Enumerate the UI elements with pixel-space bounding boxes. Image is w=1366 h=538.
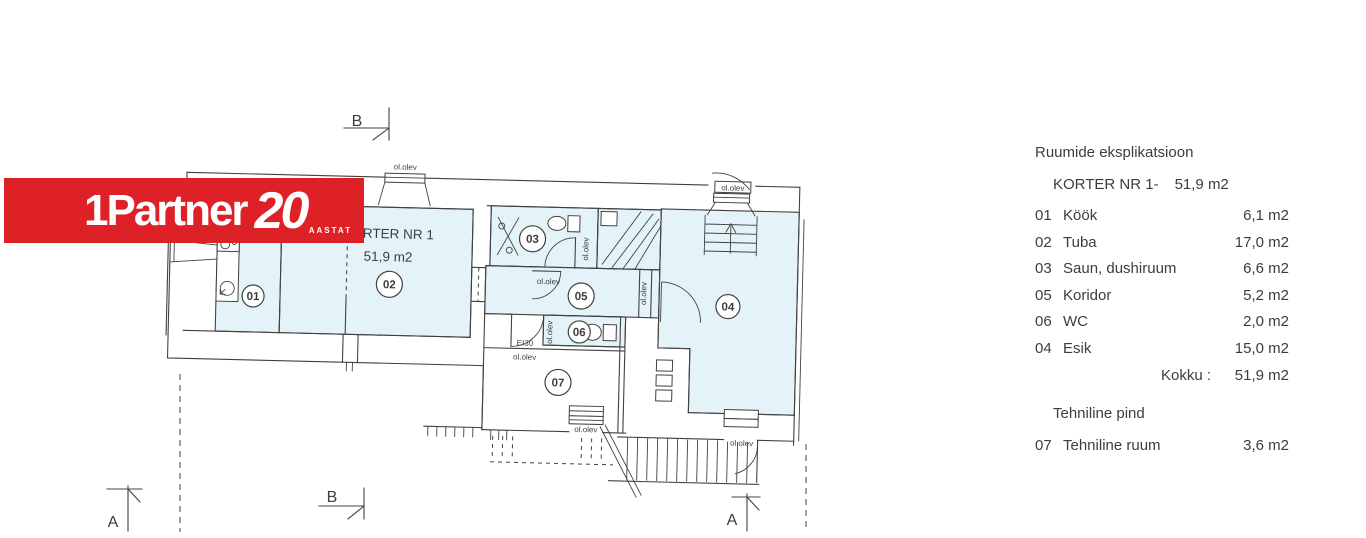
toilet-bowl-icon-03	[548, 216, 566, 230]
wc-existing-label: ol.olev	[545, 321, 555, 344]
north-window-label: ol.olev	[394, 162, 417, 172]
room-area: 2,0 m2	[1243, 313, 1289, 330]
room-name: WC	[1063, 313, 1243, 330]
room-name: Tuba	[1063, 234, 1235, 251]
room-number: 07	[1035, 437, 1063, 454]
legend-subtitle-label: KORTER NR 1-	[1053, 176, 1159, 193]
room-area: 6,6 m2	[1243, 260, 1289, 277]
room-03-existing-label: ol.olev	[581, 237, 591, 260]
room-badge-07: 07	[551, 377, 564, 389]
entry-existing-label: ol.olev	[721, 183, 744, 193]
legend-row-03: 03 Saun, dushiruum 6,6 m2	[1035, 260, 1289, 287]
toilet-tank-icon-03	[568, 216, 580, 232]
stair-diagonal	[598, 424, 643, 497]
total-value: 51,9 m2	[1211, 367, 1289, 393]
room-area: 15,0 m2	[1235, 340, 1289, 357]
room-number: 01	[1035, 207, 1063, 224]
chimney-flue-1	[656, 360, 672, 371]
legend-row-01: 01 Köök 6,1 m2	[1035, 207, 1289, 234]
room-area: 17,0 m2	[1235, 234, 1289, 251]
total-label: Kokku :	[1161, 367, 1211, 393]
section-letter-b-bottom: B	[327, 489, 338, 506]
wc-door-existing-label: ol.olev	[513, 352, 536, 362]
kitchen-counter	[216, 237, 240, 302]
chimney-flue-3	[656, 390, 672, 401]
room-area: 3,6 m2	[1243, 437, 1289, 454]
room-area: 5,2 m2	[1243, 287, 1289, 304]
section-letter-b-top: B	[352, 113, 363, 130]
room-name: Esik	[1063, 340, 1235, 357]
toilet-tank-icon-06	[603, 325, 616, 341]
partner-logo-wordmark: 1Partner	[84, 189, 247, 233]
exterior-staircase	[598, 424, 760, 500]
fire-rating-label: EI30	[517, 338, 534, 347]
apartment-area: 51,9 m2	[363, 249, 412, 265]
room-number: 04	[1035, 340, 1063, 357]
legend-subtitle-area: 51,9 m2	[1175, 176, 1229, 193]
anniversary-20-icon: 20	[255, 185, 307, 237]
legend-section2-title: Tehniline pind	[1035, 405, 1289, 422]
legend-title: Ruumide eksplikatsioon	[1035, 144, 1289, 161]
legend-row-04: 04 Esik 15,0 m2	[1035, 340, 1289, 367]
south-window-label: ol.olev	[574, 425, 597, 435]
room-badge-01: 01	[246, 291, 260, 303]
legend-subtitle: KORTER NR 1-51,9 m2	[1035, 176, 1289, 193]
room-badge-04: 04	[721, 301, 735, 313]
door-04-existing-label: ol.olev	[639, 282, 649, 305]
section-marker-b-bottom: B	[319, 488, 364, 519]
room-name: Tehniline ruum	[1063, 437, 1243, 454]
section-marker-b-top: B	[344, 108, 389, 140]
room-number: 06	[1035, 313, 1063, 330]
room-number: 05	[1035, 287, 1063, 304]
room-badge-05: 05	[575, 291, 589, 303]
anniversary-aastat-label: AASTAT	[309, 226, 352, 235]
room-badge-06: 06	[573, 327, 586, 339]
legend-row-02: 02 Tuba 17,0 m2	[1035, 234, 1289, 261]
room-name: Koridor	[1063, 287, 1243, 304]
room-badge-03: 03	[526, 234, 539, 246]
north-window-bay: ol.olev	[378, 162, 431, 206]
section-marker-a-left: A	[107, 486, 142, 531]
section-letter-a-left: A	[108, 514, 119, 531]
page: B	[0, 0, 1366, 538]
room-explication-table: Ruumide eksplikatsioon KORTER NR 1-51,9 …	[1035, 144, 1289, 464]
room-number: 03	[1035, 260, 1063, 277]
legend-row-07: 07 Tehniline ruum 3,6 m2	[1035, 437, 1289, 464]
section-letter-a-right: A	[727, 512, 738, 529]
legend-row-06: 06 WC 2,0 m2	[1035, 313, 1289, 340]
west-window-niche	[170, 240, 218, 263]
south-door-bay: ol.olev	[723, 410, 759, 475]
chimney-flue-2	[656, 375, 672, 386]
partner-logo-banner: 1Partner 20 AASTAT	[4, 178, 364, 243]
legend-total-row: Kokku : 51,9 m2	[1035, 367, 1289, 393]
south-door-arc	[735, 447, 758, 475]
section-marker-a-right: A	[727, 494, 760, 531]
room-name: Saun, dushiruum	[1063, 260, 1243, 277]
room-badge-02: 02	[383, 279, 396, 291]
room-name: Köök	[1063, 207, 1243, 224]
legend-row-05: 05 Koridor 5,2 m2	[1035, 287, 1289, 314]
room-number: 02	[1035, 234, 1063, 251]
south-door-existing-label: ol.olev	[730, 439, 753, 449]
room-area: 6,1 m2	[1243, 207, 1289, 224]
